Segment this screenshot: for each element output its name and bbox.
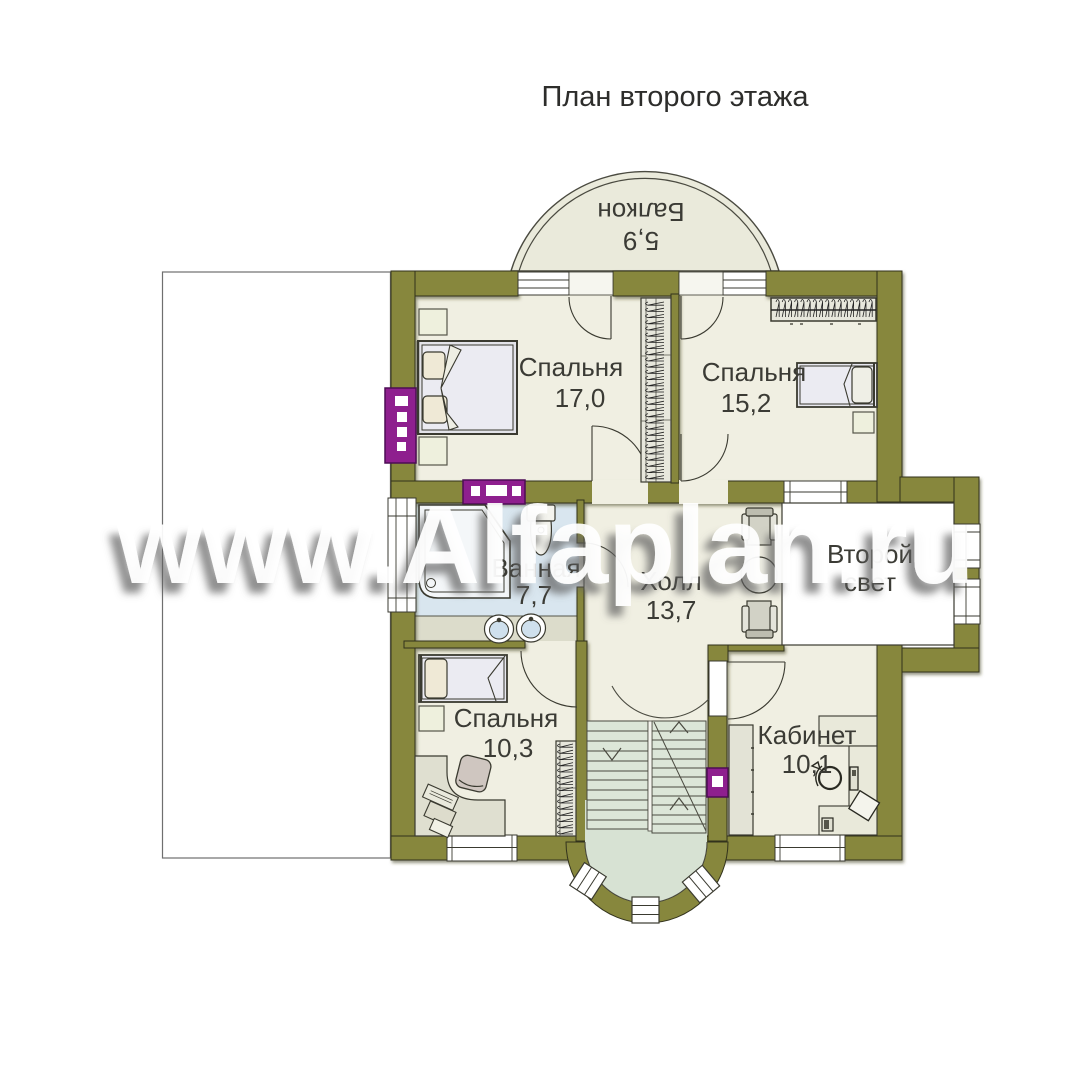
svg-text:Спальня: Спальня — [519, 352, 623, 382]
svg-text:17,0: 17,0 — [555, 383, 606, 413]
svg-text:10,3: 10,3 — [483, 733, 534, 763]
svg-text:Спальня: Спальня — [454, 703, 558, 733]
svg-text:www.Alfaplan.ru: www.Alfaplan.ru — [116, 484, 975, 607]
svg-text:5,9: 5,9 — [623, 226, 659, 256]
svg-text:Спальня: Спальня — [702, 357, 806, 387]
svg-text:15,2: 15,2 — [721, 388, 772, 418]
svg-text:Балкон: Балкон — [597, 197, 684, 227]
svg-text:План второго этажа: План второго этажа — [542, 81, 810, 113]
svg-text:Кабинет: Кабинет — [758, 720, 857, 750]
svg-text:10,1: 10,1 — [782, 749, 833, 779]
